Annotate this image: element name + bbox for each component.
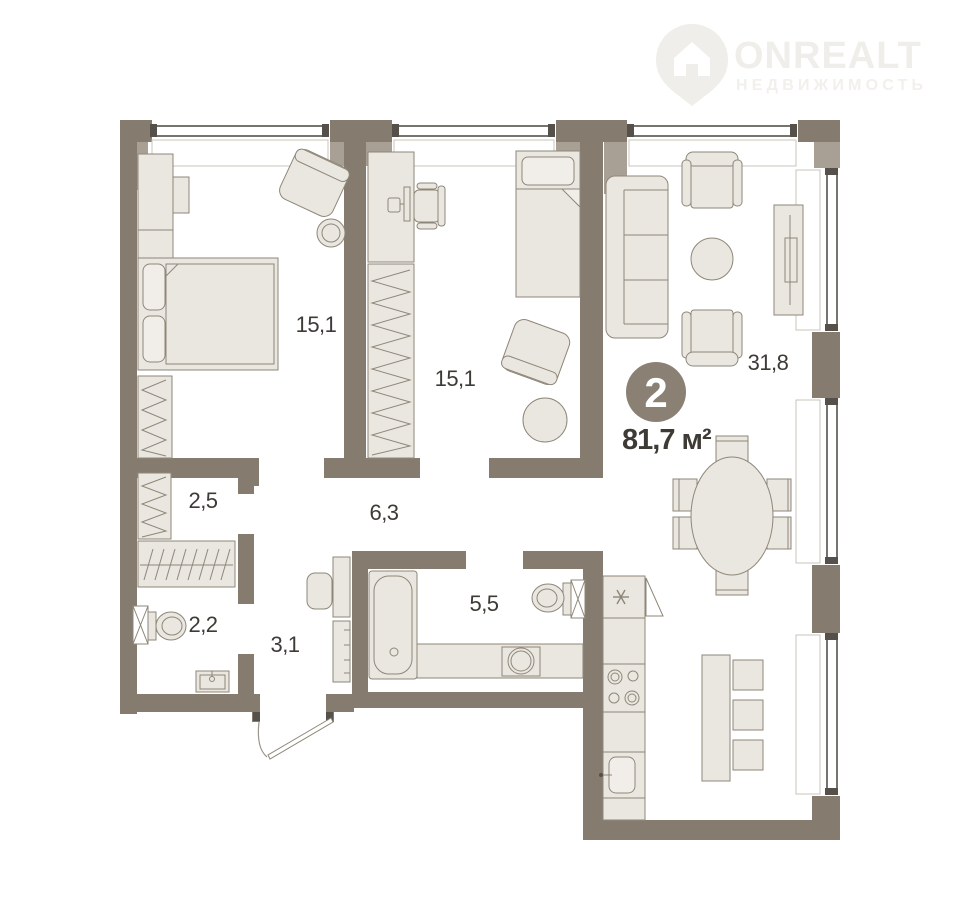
round-table: [523, 398, 567, 442]
tv-console: [774, 205, 803, 315]
single-bed: [516, 151, 580, 297]
stove: [603, 664, 645, 712]
hanger-closet: [138, 376, 172, 458]
kitchen-sink: [599, 752, 645, 798]
logo-subtitle-text: НЕДВИЖИМОСТЬ: [736, 77, 927, 94]
toilet: [148, 612, 186, 640]
logo-brand-text: ONREALT: [734, 35, 922, 77]
hanger-closet: [138, 473, 171, 539]
room-label-corridor: 6,3: [369, 500, 398, 525]
window-living-right-3: [825, 633, 838, 795]
room-label-bedroom-1: 15,1: [296, 312, 337, 337]
hanger-wardrobe: [368, 264, 414, 458]
armchair: [500, 317, 573, 388]
floor-plan-page: ONREALT НЕДВИЖИМОСТЬ: [0, 0, 961, 910]
floor-plan: ONREALT НЕДВИЖИМОСТЬ: [0, 0, 961, 910]
room-label-bathroom: 5,5: [469, 591, 498, 616]
bench: [307, 573, 332, 609]
kitchen-counter: [599, 576, 663, 820]
desk: [368, 152, 414, 262]
bathroom-furniture: [369, 571, 585, 679]
hallway-furniture: [307, 557, 350, 682]
room-label-bedroom-2: 15,1: [435, 366, 476, 391]
shaft-box: [133, 606, 148, 644]
bedroom-1-furniture: [138, 146, 352, 458]
sofa: [606, 176, 668, 338]
room-label-living: 31,8: [748, 350, 789, 375]
living-room-furniture: [599, 152, 803, 820]
room-label-wc: 2,2: [188, 612, 217, 637]
entrance-door: [253, 712, 333, 759]
toilet: [532, 580, 585, 618]
kitchen-island: [702, 655, 763, 781]
logo-pin-icon: [656, 24, 728, 106]
armchair-bottom: [682, 310, 742, 366]
office-chair: [414, 183, 445, 229]
window-bedroom-1: [150, 124, 329, 137]
wardrobe-room-furniture: [138, 473, 235, 587]
rooms-count-number: 2: [644, 369, 667, 416]
window-living-top: [627, 124, 797, 137]
onrealt-logo: ONREALT НЕДВИЖИМОСТЬ: [656, 24, 927, 106]
hanger-rail-unit: [138, 541, 235, 587]
bathtub: [369, 571, 417, 679]
room-label-hallway: 3,1: [270, 632, 299, 657]
dining-table: [691, 457, 773, 575]
room-label-wardrobe: 2,5: [188, 488, 217, 513]
washbasin: [196, 671, 229, 692]
bedroom-2-furniture: [368, 151, 580, 458]
apartment-summary: 2 81,7 м²: [622, 362, 712, 456]
dining-set: [673, 436, 791, 595]
armchair-top: [682, 152, 742, 208]
window-living-right-1: [825, 168, 838, 331]
window-bedroom-2: [392, 124, 555, 137]
coffee-table: [691, 238, 733, 280]
hall-cabinet: [333, 557, 350, 682]
window-living-right-2: [825, 398, 838, 564]
door-swing-arc: [258, 722, 267, 757]
total-area-label: 81,7 м²: [622, 424, 712, 456]
vanity-counter: [417, 644, 583, 678]
wardrobe-unit: [138, 154, 189, 258]
door-leaf: [268, 718, 333, 759]
pouf: [317, 219, 345, 247]
fridge-door-swing: [646, 578, 663, 616]
double-bed: [138, 258, 278, 370]
